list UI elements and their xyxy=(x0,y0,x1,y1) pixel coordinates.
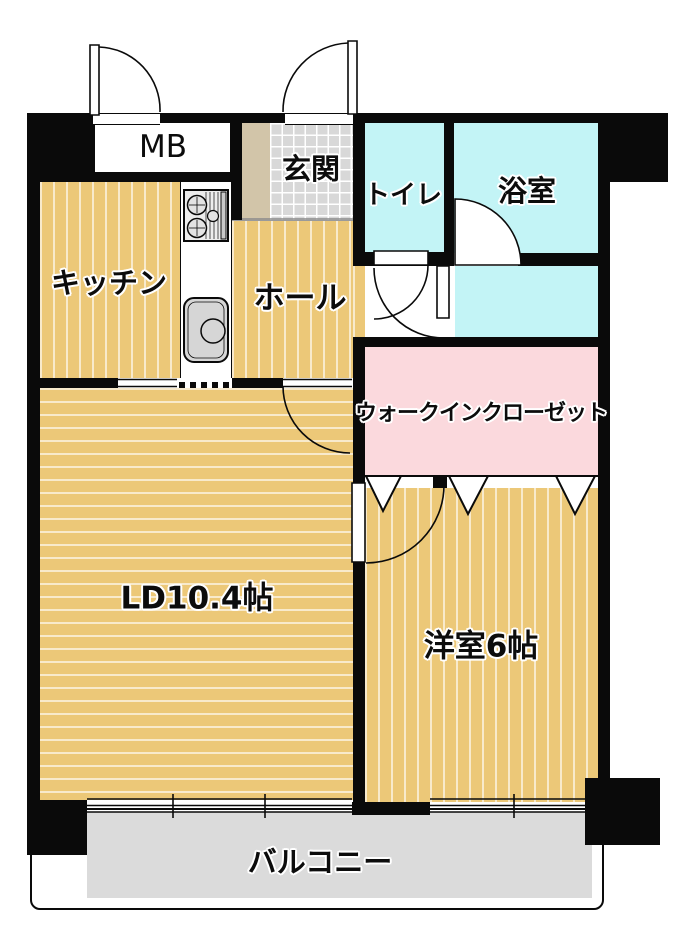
ld-window-icon xyxy=(87,794,352,818)
entrance-door xyxy=(283,41,357,114)
kitchen-label: キッチン xyxy=(51,260,167,302)
bath-label: 浴室 xyxy=(498,168,556,210)
balcony-label: バルコニー xyxy=(248,839,392,881)
toilet-door xyxy=(374,251,428,319)
mb-label: MB xyxy=(139,129,187,165)
sink-icon xyxy=(184,298,228,362)
kitchen-opening xyxy=(118,380,177,387)
toilet-label: トイレ xyxy=(364,175,442,212)
closet-folding-doors-icon xyxy=(366,476,595,514)
stove-icon xyxy=(184,190,228,241)
western-room-label: 洋室6帖 xyxy=(424,621,539,666)
living-dining-label: LD10.4帖 xyxy=(121,573,274,618)
mb-door xyxy=(90,45,160,115)
floorplan: MB 玄関 トイレ 浴室 キッチン ホール ウォークインクローゼット LD10.… xyxy=(0,0,694,950)
washroom-door xyxy=(374,266,449,338)
symbols-layer xyxy=(0,0,694,950)
walk-in-closet-label: ウォークインクローゼット xyxy=(355,395,607,427)
hall-ld-door xyxy=(283,380,352,454)
hall-label: ホール xyxy=(254,273,347,318)
entry-label: 玄関 xyxy=(282,146,340,188)
western-room-door xyxy=(352,483,444,563)
western-window-icon xyxy=(430,794,598,818)
